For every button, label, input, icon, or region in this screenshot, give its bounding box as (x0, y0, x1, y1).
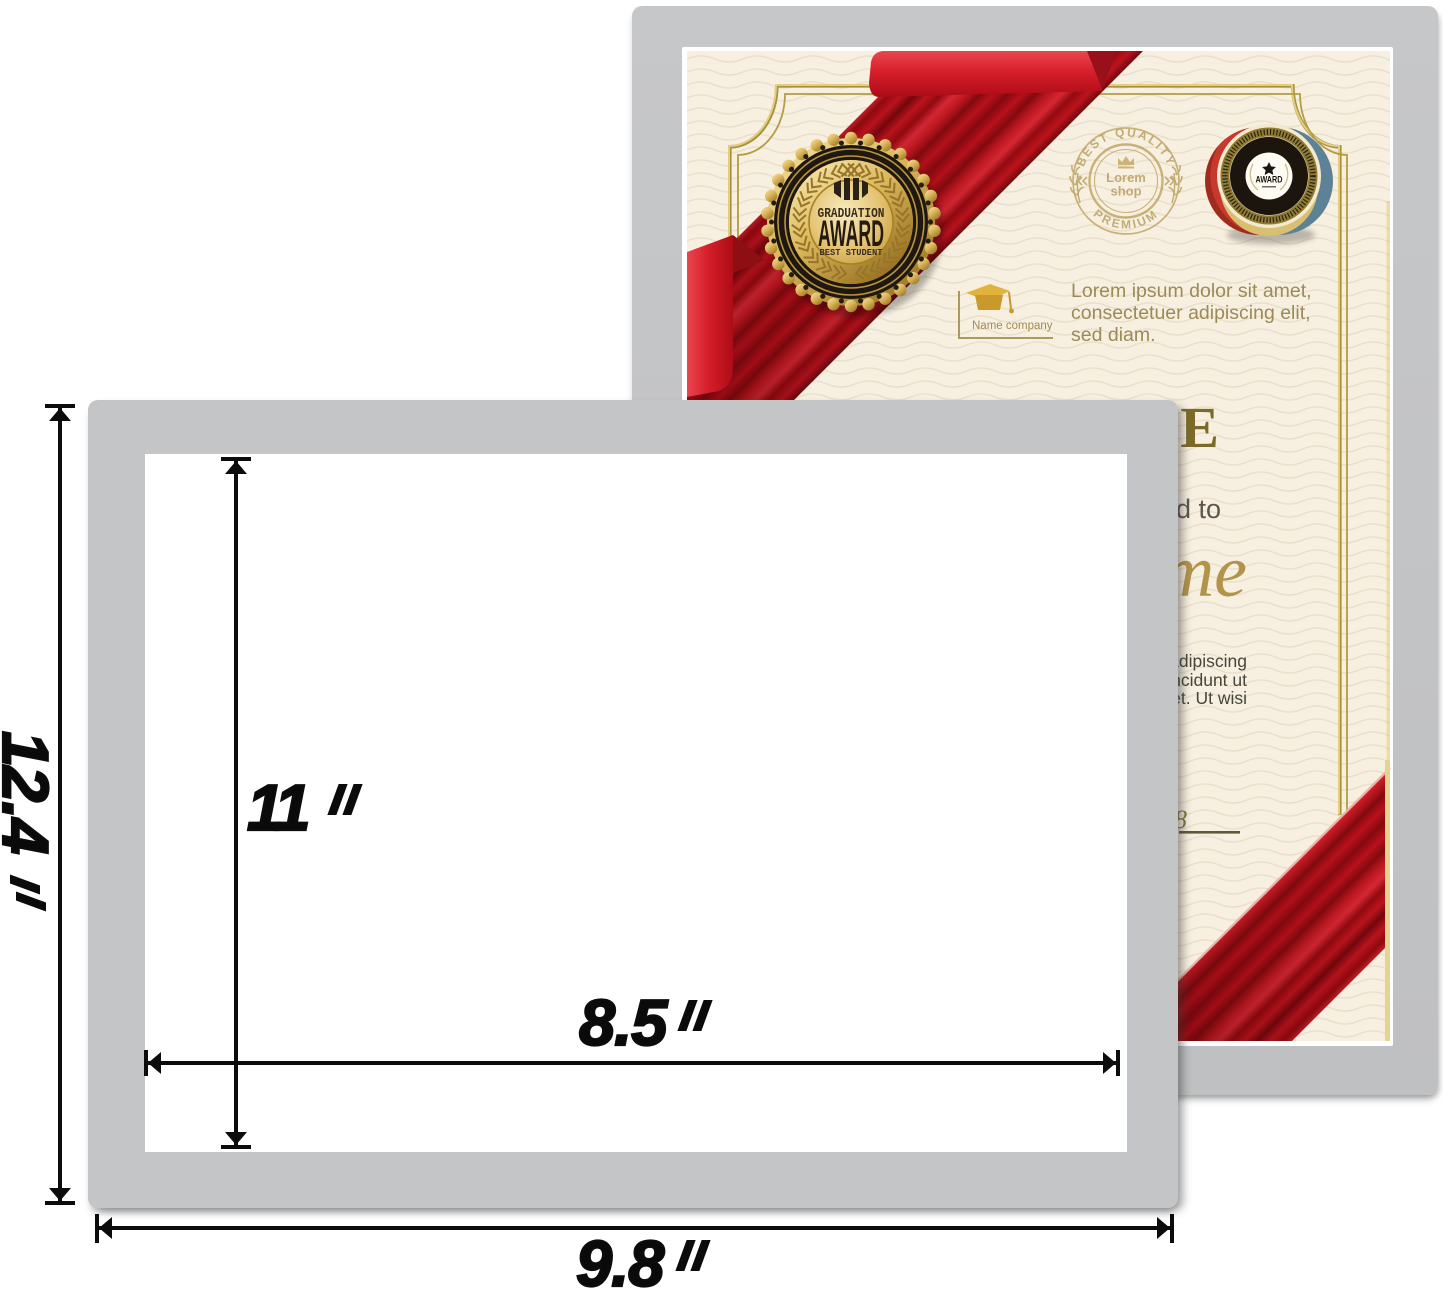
svg-text:AWARD: AWARD (1256, 175, 1283, 186)
svg-text:Lorem ipsum dolor sit amet,: Lorem ipsum dolor sit amet, (1071, 280, 1312, 302)
svg-text:sed diam.: sed diam. (1071, 324, 1156, 346)
svg-text:BEST STUDENT: BEST STUDENT (820, 247, 883, 258)
svg-text:Name company: Name company (972, 320, 1053, 332)
svg-text:shop: shop (1110, 184, 1141, 199)
svg-text:consectetuer adipiscing elit,: consectetuer adipiscing elit, (1071, 302, 1311, 324)
